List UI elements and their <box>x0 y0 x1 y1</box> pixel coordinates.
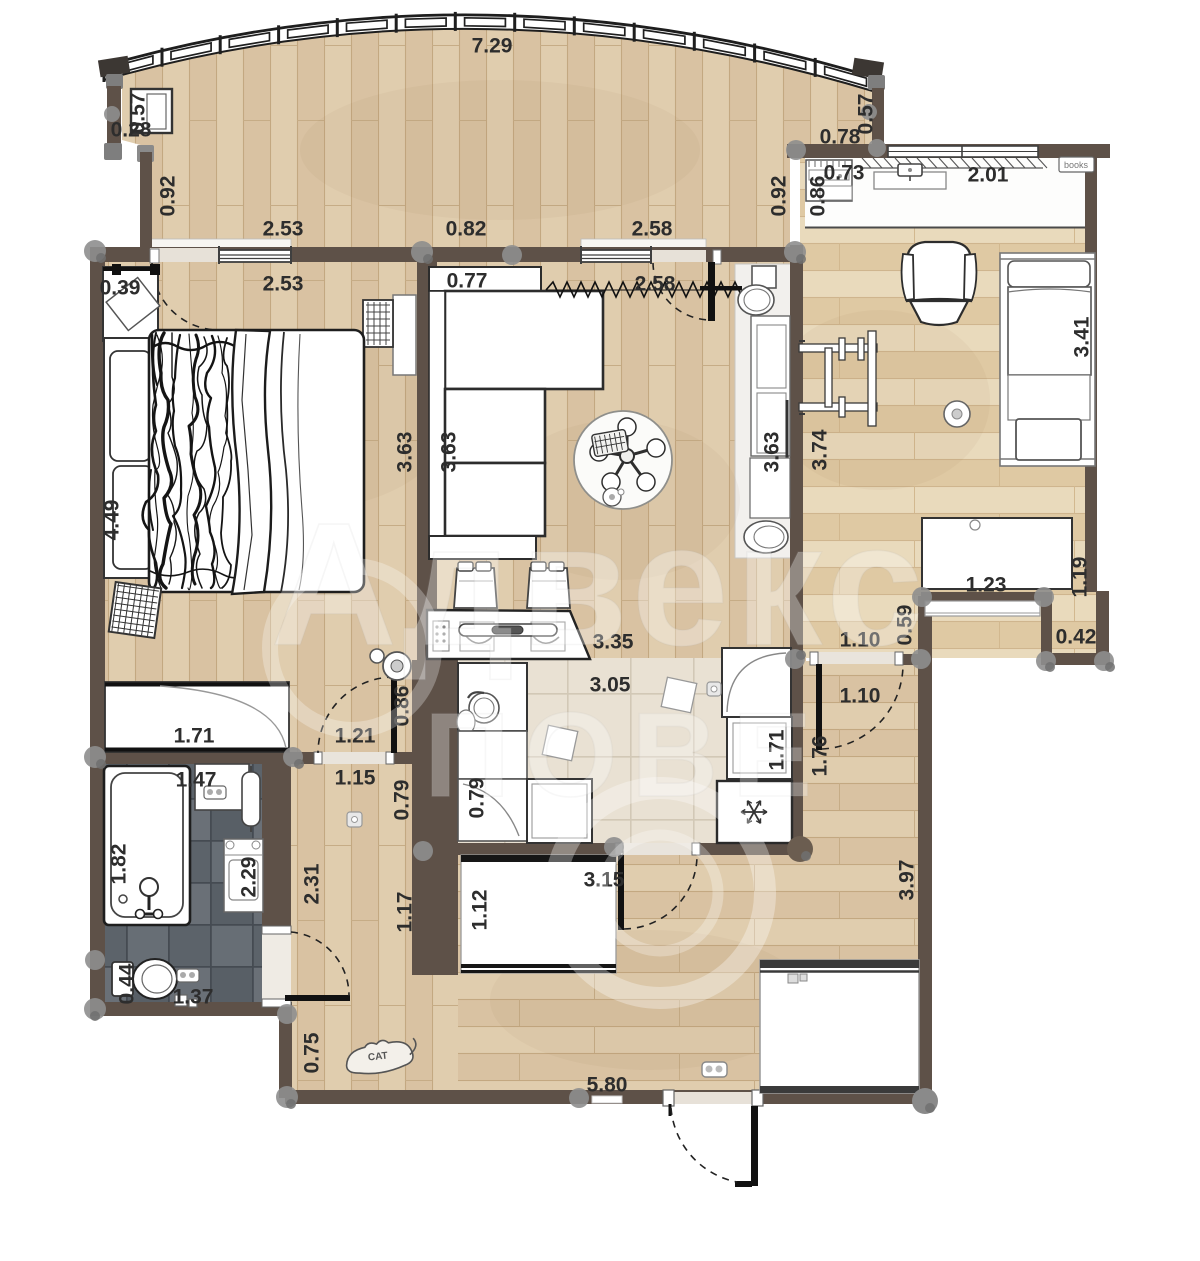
svg-text:1.10: 1.10 <box>840 629 881 652</box>
svg-text:books: books <box>1064 160 1089 170</box>
svg-text:3.63: 3.63 <box>761 432 784 473</box>
svg-text:0.57: 0.57 <box>127 93 150 134</box>
svg-text:CAT: CAT <box>367 1051 388 1064</box>
svg-text:2.53: 2.53 <box>263 273 304 296</box>
svg-text:1.23: 1.23 <box>966 574 1007 597</box>
svg-text:3.05: 3.05 <box>590 674 631 697</box>
svg-text:1.82: 1.82 <box>108 844 131 885</box>
svg-text:0.79: 0.79 <box>466 778 489 819</box>
svg-text:1.37: 1.37 <box>173 986 214 1009</box>
svg-text:3.35: 3.35 <box>593 631 634 654</box>
svg-text:1.10: 1.10 <box>840 685 881 708</box>
svg-text:3.63: 3.63 <box>438 432 461 473</box>
svg-text:0.73: 0.73 <box>824 162 865 185</box>
svg-text:0.92: 0.92 <box>768 176 791 217</box>
svg-text:0.44: 0.44 <box>116 963 139 1004</box>
svg-text:0.42: 0.42 <box>1056 626 1097 649</box>
svg-text:1.12: 1.12 <box>469 890 492 931</box>
svg-text:1.15: 1.15 <box>335 767 376 790</box>
svg-text:7.29: 7.29 <box>472 35 513 58</box>
svg-text:0.86: 0.86 <box>807 176 830 217</box>
svg-text:3.74: 3.74 <box>809 429 832 470</box>
svg-text:1.76: 1.76 <box>809 736 832 777</box>
svg-text:0.39: 0.39 <box>100 277 141 300</box>
svg-text:2.58: 2.58 <box>635 273 676 296</box>
svg-text:3.15: 3.15 <box>584 869 625 892</box>
svg-text:4.49: 4.49 <box>101 500 124 541</box>
svg-text:2.58: 2.58 <box>632 218 673 241</box>
svg-text:5.80: 5.80 <box>587 1074 628 1097</box>
svg-text:1.71: 1.71 <box>766 729 789 770</box>
svg-text:1.71: 1.71 <box>174 725 215 748</box>
svg-text:2.53: 2.53 <box>263 218 304 241</box>
svg-text:3.41: 3.41 <box>1071 316 1094 357</box>
svg-text:2.29: 2.29 <box>238 857 261 898</box>
svg-text:0.86: 0.86 <box>391 686 414 727</box>
svg-text:3.97: 3.97 <box>896 860 919 901</box>
svg-text:0.82: 0.82 <box>446 218 487 241</box>
svg-text:0.75: 0.75 <box>301 1032 324 1073</box>
svg-text:1.19: 1.19 <box>1069 557 1092 598</box>
svg-text:1.17: 1.17 <box>394 892 417 933</box>
svg-text:3.63: 3.63 <box>394 432 417 473</box>
svg-text:2.31: 2.31 <box>301 863 324 904</box>
svg-text:0.59: 0.59 <box>894 605 917 646</box>
svg-text:0.79: 0.79 <box>391 780 414 821</box>
svg-text:0.77: 0.77 <box>447 270 488 293</box>
svg-text:0.57: 0.57 <box>855 94 878 135</box>
svg-text:1.21: 1.21 <box>335 725 376 748</box>
svg-text:2.01: 2.01 <box>968 164 1009 187</box>
svg-text:0.92: 0.92 <box>157 176 180 217</box>
svg-text:1.47: 1.47 <box>176 769 217 792</box>
